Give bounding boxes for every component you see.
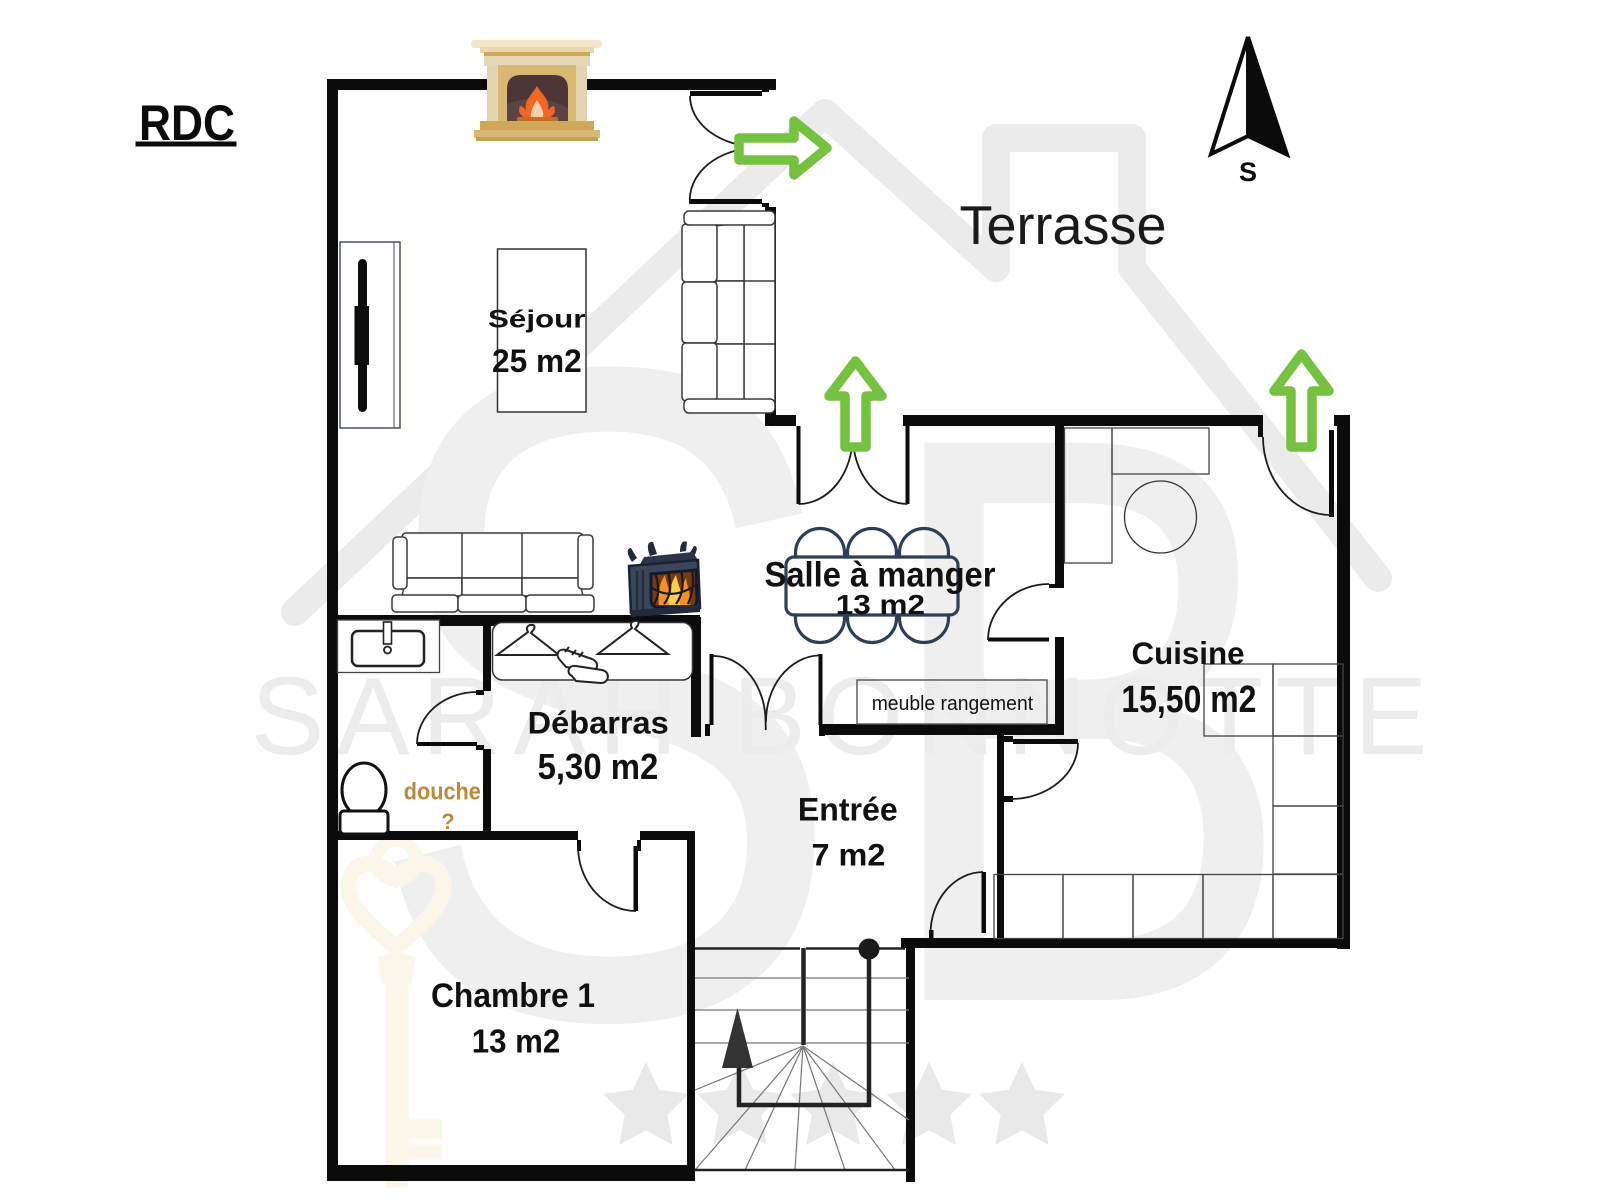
svg-text:7 m2: 7 m2	[812, 836, 886, 872]
svg-text:Chambre 1: Chambre 1	[431, 977, 595, 1015]
svg-text:Débarras: Débarras	[528, 704, 669, 740]
svg-text:meuble rangement: meuble rangement	[872, 692, 1034, 715]
svg-text:douche: douche	[404, 780, 481, 806]
svg-text:?: ?	[441, 809, 454, 834]
svg-text:15,50 m2: 15,50 m2	[1121, 679, 1256, 721]
svg-text:13 m2: 13 m2	[472, 1023, 561, 1060]
svg-text:Terrasse: Terrasse	[960, 194, 1167, 256]
svg-text:SARAH BONNOTTE: SARAH BONNOTTE	[251, 655, 1440, 778]
svg-text:S: S	[1239, 157, 1257, 187]
svg-text:5,30 m2: 5,30 m2	[538, 747, 659, 787]
svg-text:13 m2: 13 m2	[836, 589, 925, 620]
svg-text:Entrée: Entrée	[798, 792, 898, 828]
svg-text:Séjour: Séjour	[488, 306, 586, 334]
svg-text:Cuisine: Cuisine	[1132, 635, 1245, 671]
svg-text:25 m2: 25 m2	[492, 343, 582, 379]
